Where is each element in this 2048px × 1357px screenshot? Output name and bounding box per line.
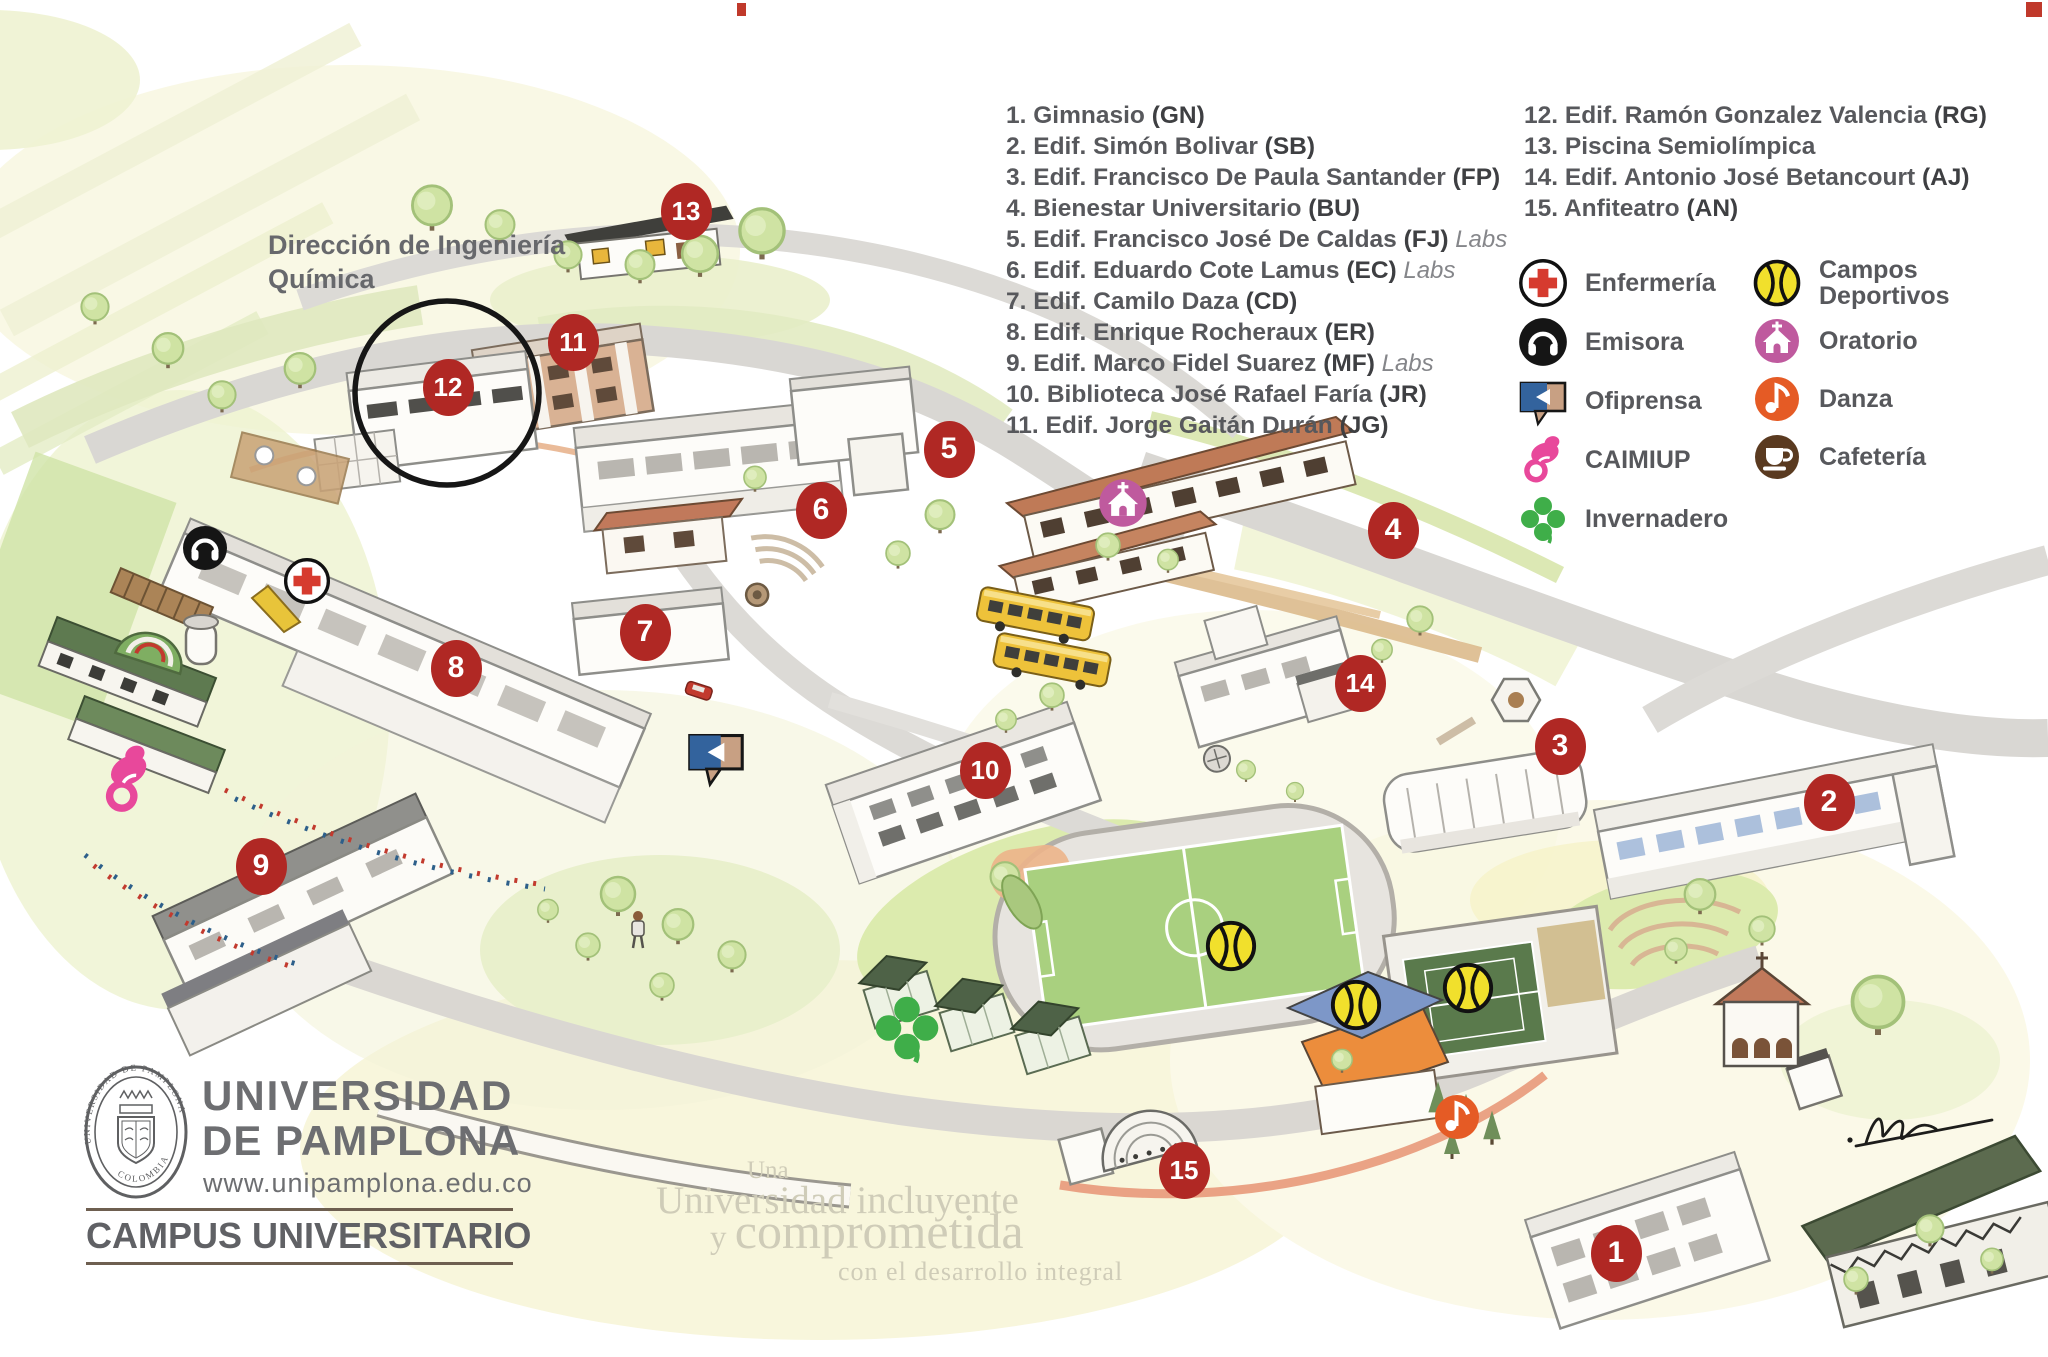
building-name: 8. Edif. Enrique Rocheraux (1006, 319, 1325, 346)
map-marker-7: 7 (620, 604, 671, 661)
university-name-line1: UNIVERSIDAD (202, 1072, 513, 1120)
map-enfermeria-icon (282, 556, 332, 606)
slogan-line4: con el desarrollo integral (838, 1259, 1123, 1285)
map-marker-8: 8 (431, 640, 482, 697)
slogan-line3-y: y (710, 1220, 735, 1256)
map-caimiup-icon (86, 738, 169, 821)
building-code: (BU) (1308, 195, 1360, 222)
building-labs-tag: Labs (1375, 350, 1434, 377)
map-campos-icon (1203, 918, 1259, 974)
map-marker-12: 12 (423, 359, 474, 416)
icon-legend-column-2: Campos DeportivosOratorioDanzaCafetería (1748, 256, 2009, 488)
building-name: 7. Edif. Camilo Daza (1006, 288, 1246, 315)
legend-label-oratorio: Oratorio (1819, 328, 2009, 354)
map-campos-icon (1440, 960, 1496, 1016)
building-name: 13. Piscina Semiolímpica (1524, 133, 1815, 160)
university-url: www.unipamplona.edu.co (203, 1168, 533, 1199)
slogan-line3: y comprometida (710, 1206, 1024, 1256)
map-marker-6: 6 (796, 482, 847, 539)
building-code: (EC) (1346, 257, 1396, 284)
building-name: 4. Bienestar Universitario (1006, 195, 1308, 222)
building-name: 6. Edif. Eduardo Cote Lamus (1006, 257, 1346, 284)
map-marker-4: 4 (1368, 502, 1419, 559)
cafeteria-icon (1748, 431, 1806, 483)
legend-label-caimiup: CAIMIUP (1585, 447, 1775, 473)
building-list-item-3: 3. Edif. Francisco De Paula Santander (F… (1006, 162, 1507, 193)
legend-row-caimiup: CAIMIUP (1514, 433, 1775, 487)
map-marker-2: 2 (1804, 774, 1855, 831)
building-code: (SB) (1265, 133, 1315, 160)
legend-label-invernadero: Invernadero (1585, 506, 1775, 532)
campus-rule-top (86, 1208, 513, 1211)
map-marker-3: 3 (1535, 718, 1586, 775)
building-code: (GN) (1152, 102, 1205, 129)
map-marker-10: 10 (960, 742, 1011, 799)
slogan-line3-word: comprometida (735, 1203, 1024, 1259)
building-code: (AJ) (1922, 164, 1970, 191)
legend-row-cafeteria: Cafetería (1748, 430, 2009, 484)
building-labs-tag: Labs (1449, 226, 1508, 253)
building-list-column-2: 12. Edif. Ramón Gonzalez Valencia (RG)13… (1524, 100, 1987, 224)
legend-row-ofiprensa: Ofiprensa (1514, 374, 1775, 428)
building-name: 5. Edif. Francisco José De Caldas (1006, 226, 1404, 253)
building-code: (MF) (1323, 350, 1375, 377)
legend-row-danza: Danza (1748, 372, 2009, 426)
ofiprensa-icon (1514, 375, 1572, 427)
building-name: 9. Edif. Marco Fidel Suarez (1006, 350, 1323, 377)
legend-label-cafeteria: Cafetería (1819, 444, 2009, 470)
map-campos-icon (1328, 977, 1384, 1033)
map-ofiprensa-icon (685, 726, 747, 788)
map-marker-1: 1 (1591, 1225, 1642, 1282)
caimiup-icon (1514, 434, 1572, 486)
scan-artifacts (737, 2, 2042, 17)
building-list-item-15: 15. Anfiteatro (AN) (1524, 193, 1987, 224)
emisora-icon (1514, 316, 1572, 368)
legend-label-danza: Danza (1819, 386, 2009, 412)
legend-row-emisora: Emisora (1514, 315, 1775, 369)
building-code: (AN) (1686, 195, 1738, 222)
campus-map-poster: Dirección de Ingeniería Química 1. Gimna… (0, 0, 2048, 1357)
building-list-item-11: 11. Edif. Jorge Gaitán Durán (JG) (1006, 410, 1507, 441)
building-list-item-9: 9. Edif. Marco Fidel Suarez (MF) Labs (1006, 348, 1507, 379)
building-list-item-8: 8. Edif. Enrique Rocheraux (ER) (1006, 317, 1507, 348)
legend-label-ofiprensa: Ofiprensa (1585, 388, 1775, 414)
building-code: (FP) (1453, 164, 1501, 191)
danza-icon (1748, 373, 1806, 425)
map-marker-9: 9 (236, 838, 287, 895)
building-list-item-14: 14. Edif. Antonio José Betancourt (AJ) (1524, 162, 1987, 193)
building-code: (ER) (1325, 319, 1375, 346)
building-name: 14. Edif. Antonio José Betancourt (1524, 164, 1922, 191)
chem-engineering-label-line2: Química (268, 262, 565, 296)
building-list-item-12: 12. Edif. Ramón Gonzalez Valencia (RG) (1524, 100, 1987, 131)
legend-row-campos: Campos Deportivos (1748, 256, 2009, 310)
map-danza-icon (1431, 1091, 1483, 1143)
campus-title: CAMPUS UNIVERSITARIO (86, 1215, 531, 1257)
legend-row-oratorio: Oratorio (1748, 314, 2009, 368)
building-code: (RG) (1934, 102, 1987, 129)
building-name: 11. Edif. Jorge Gaitán Durán (1006, 412, 1340, 439)
building-code: (FJ) (1404, 226, 1449, 253)
building-list-item-1: 1. Gimnasio (GN) (1006, 100, 1507, 131)
building-list-item-2: 2. Edif. Simón Bolivar (SB) (1006, 131, 1507, 162)
building-name: 1. Gimnasio (1006, 102, 1152, 129)
map-emisora-icon (181, 524, 229, 572)
building-name: 3. Edif. Francisco De Paula Santander (1006, 164, 1453, 191)
building-list-item-10: 10. Biblioteca José Rafael Faría (JR) (1006, 379, 1507, 410)
enfermeria-icon (1514, 257, 1572, 309)
map-marker-13: 13 (661, 183, 712, 240)
map-marker-15: 15 (1159, 1142, 1210, 1199)
building-name: 12. Edif. Ramón Gonzalez Valencia (1524, 102, 1934, 129)
chem-engineering-label-line1: Dirección de Ingeniería (268, 228, 565, 262)
legend-label-enfermeria: Enfermería (1585, 270, 1775, 296)
building-list-item-5: 5. Edif. Francisco José De Caldas (FJ) L… (1006, 224, 1507, 255)
map-oratorio-icon (1095, 475, 1151, 531)
map-marker-14: 14 (1335, 655, 1386, 712)
building-list-column-1: 1. Gimnasio (GN)2. Edif. Simón Bolivar (… (1006, 100, 1507, 441)
building-labs-tag: Labs (1397, 257, 1456, 284)
legend-label-emisora: Emisora (1585, 329, 1775, 355)
map-marker-5: 5 (924, 421, 975, 478)
campus-rule-bottom (86, 1262, 513, 1265)
university-seal: UNIVERSIDAD DE PAMPLONA COLOMBIA (80, 1062, 192, 1202)
map-invernadero-icon (870, 991, 944, 1065)
oratorio-icon (1748, 315, 1806, 367)
building-name: 15. Anfiteatro (1524, 195, 1686, 222)
building-list-item-6: 6. Edif. Eduardo Cote Lamus (EC) Labs (1006, 255, 1507, 286)
building-list-item-4: 4. Bienestar Universitario (BU) (1006, 193, 1507, 224)
building-name: 10. Biblioteca José Rafael Faría (1006, 381, 1379, 408)
chem-engineering-label: Dirección de Ingeniería Química (268, 228, 565, 296)
map-marker-11: 11 (548, 314, 599, 371)
legend-row-enfermeria: Enfermería (1514, 256, 1775, 310)
invernadero-icon (1514, 493, 1572, 545)
legend-label-campos: Campos Deportivos (1819, 257, 2009, 309)
icon-legend-column-1: EnfermeríaEmisoraOfiprensaCAIMIUPInverna… (1514, 256, 1775, 551)
building-name: 2. Edif. Simón Bolivar (1006, 133, 1265, 160)
building-code: (CD) (1246, 288, 1298, 315)
building-list-item-7: 7. Edif. Camilo Daza (CD) (1006, 286, 1507, 317)
campos-icon (1748, 257, 1806, 309)
building-code: (JG) (1340, 412, 1389, 439)
university-name-line2: DE PAMPLONA (202, 1117, 520, 1165)
building-list-item-13: 13. Piscina Semiolímpica (1524, 131, 1987, 162)
building-code: (JR) (1379, 381, 1427, 408)
legend-row-invernadero: Invernadero (1514, 492, 1775, 546)
